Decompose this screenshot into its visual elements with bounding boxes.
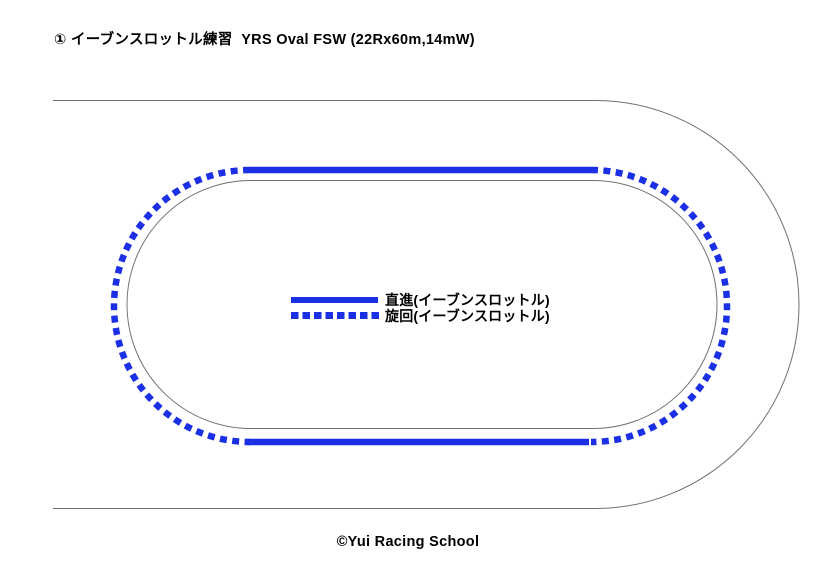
dotted-line-swatch — [291, 312, 380, 319]
legend: 直進(イーブンスロットル) 旋回(イーブンスロットル) — [291, 292, 550, 323]
solid-line-swatch — [291, 297, 378, 303]
driving-line-turn-left — [114, 170, 250, 442]
track-diagram — [0, 0, 816, 564]
diagram-page: ① イーブンスロットル練習 YRS Oval FSW (22Rx60m,14mW… — [0, 0, 816, 564]
copyright: ©Yui Racing School — [0, 534, 816, 550]
driving-line-turn-right — [591, 170, 727, 442]
legend-item-turn: 旋回(イーブンスロットル) — [291, 308, 550, 323]
legend-label-turn: 旋回(イーブンスロットル) — [385, 306, 550, 326]
